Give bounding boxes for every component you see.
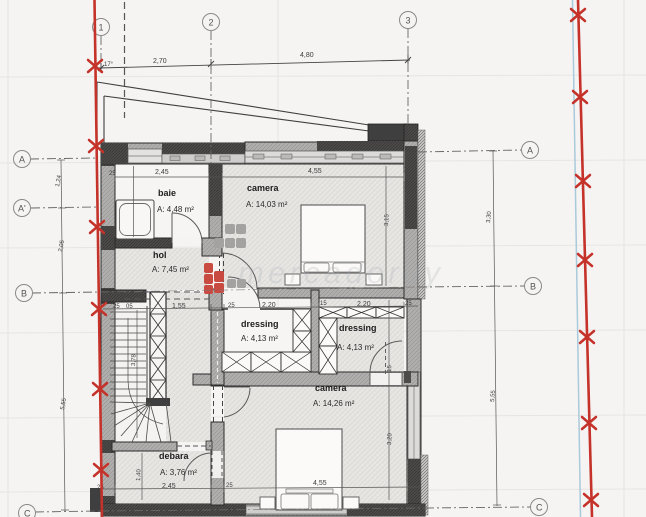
svg-text:A: 4,13 m²: A: 4,13 m²	[241, 334, 278, 343]
svg-text:A: 14,26 m²: A: 14,26 m²	[313, 399, 355, 408]
svg-text:B: B	[21, 289, 27, 299]
svg-text:A: 14,03 m²: A: 14,03 m²	[246, 200, 288, 209]
svg-text:15: 15	[387, 364, 393, 372]
svg-text:hol: hol	[153, 250, 167, 260]
svg-text:25: 25	[228, 303, 235, 309]
svg-text:mercadoruy: mercadoruy	[238, 255, 443, 290]
svg-text:2,20: 2,20	[357, 301, 371, 308]
svg-text:05: 05	[126, 304, 133, 310]
svg-text:debara: debara	[159, 451, 190, 461]
svg-text:camera: camera	[315, 383, 348, 393]
svg-text:1: 1	[99, 23, 104, 33]
svg-text:5,55: 5,55	[490, 389, 497, 402]
svg-text:A: 4,13 m²: A: 4,13 m²	[337, 343, 374, 352]
svg-text:1,40: 1,40	[136, 468, 143, 481]
svg-text:C: C	[536, 503, 543, 513]
svg-text:3: 3	[406, 16, 411, 26]
svg-text:3,30: 3,30	[486, 210, 493, 223]
svg-text:A: 3,76 m²: A: 3,76 m²	[160, 468, 197, 477]
svg-text:4,55: 4,55	[313, 480, 327, 487]
svg-text:2,45: 2,45	[162, 483, 176, 490]
svg-text:baie: baie	[158, 188, 176, 198]
svg-text:4,80: 4,80	[300, 52, 314, 59]
svg-text:A: 4,48 m²: A: 4,48 m²	[157, 205, 194, 214]
svg-text:25: 25	[226, 483, 233, 489]
svg-text:15: 15	[320, 301, 327, 307]
svg-text:25: 25	[405, 301, 412, 307]
svg-text:camera: camera	[247, 183, 280, 193]
svg-text:B: B	[530, 282, 536, 292]
svg-text:A: A	[19, 155, 25, 165]
svg-text:C: C	[24, 509, 31, 517]
svg-text:3,15: 3,15	[384, 213, 391, 226]
svg-text:2,20: 2,20	[262, 302, 276, 309]
svg-text:17°: 17°	[104, 62, 114, 68]
svg-text:3,20: 3,20	[387, 432, 394, 445]
svg-text:2,45: 2,45	[155, 169, 169, 176]
svg-text:dressing: dressing	[241, 319, 279, 329]
svg-text:4,55: 4,55	[308, 168, 322, 175]
svg-text:A: 7,45 m²: A: 7,45 m²	[152, 265, 189, 274]
svg-text:25: 25	[109, 171, 116, 177]
svg-text:1,55: 1,55	[172, 303, 186, 310]
svg-text:A: A	[527, 146, 533, 156]
svg-text:25: 25	[113, 304, 120, 310]
svg-text:2: 2	[209, 18, 214, 28]
svg-text:2,70: 2,70	[153, 58, 167, 65]
svg-text:3,78: 3,78	[131, 353, 138, 366]
svg-text:A': A'	[18, 204, 26, 214]
svg-text:dressing: dressing	[339, 323, 377, 333]
